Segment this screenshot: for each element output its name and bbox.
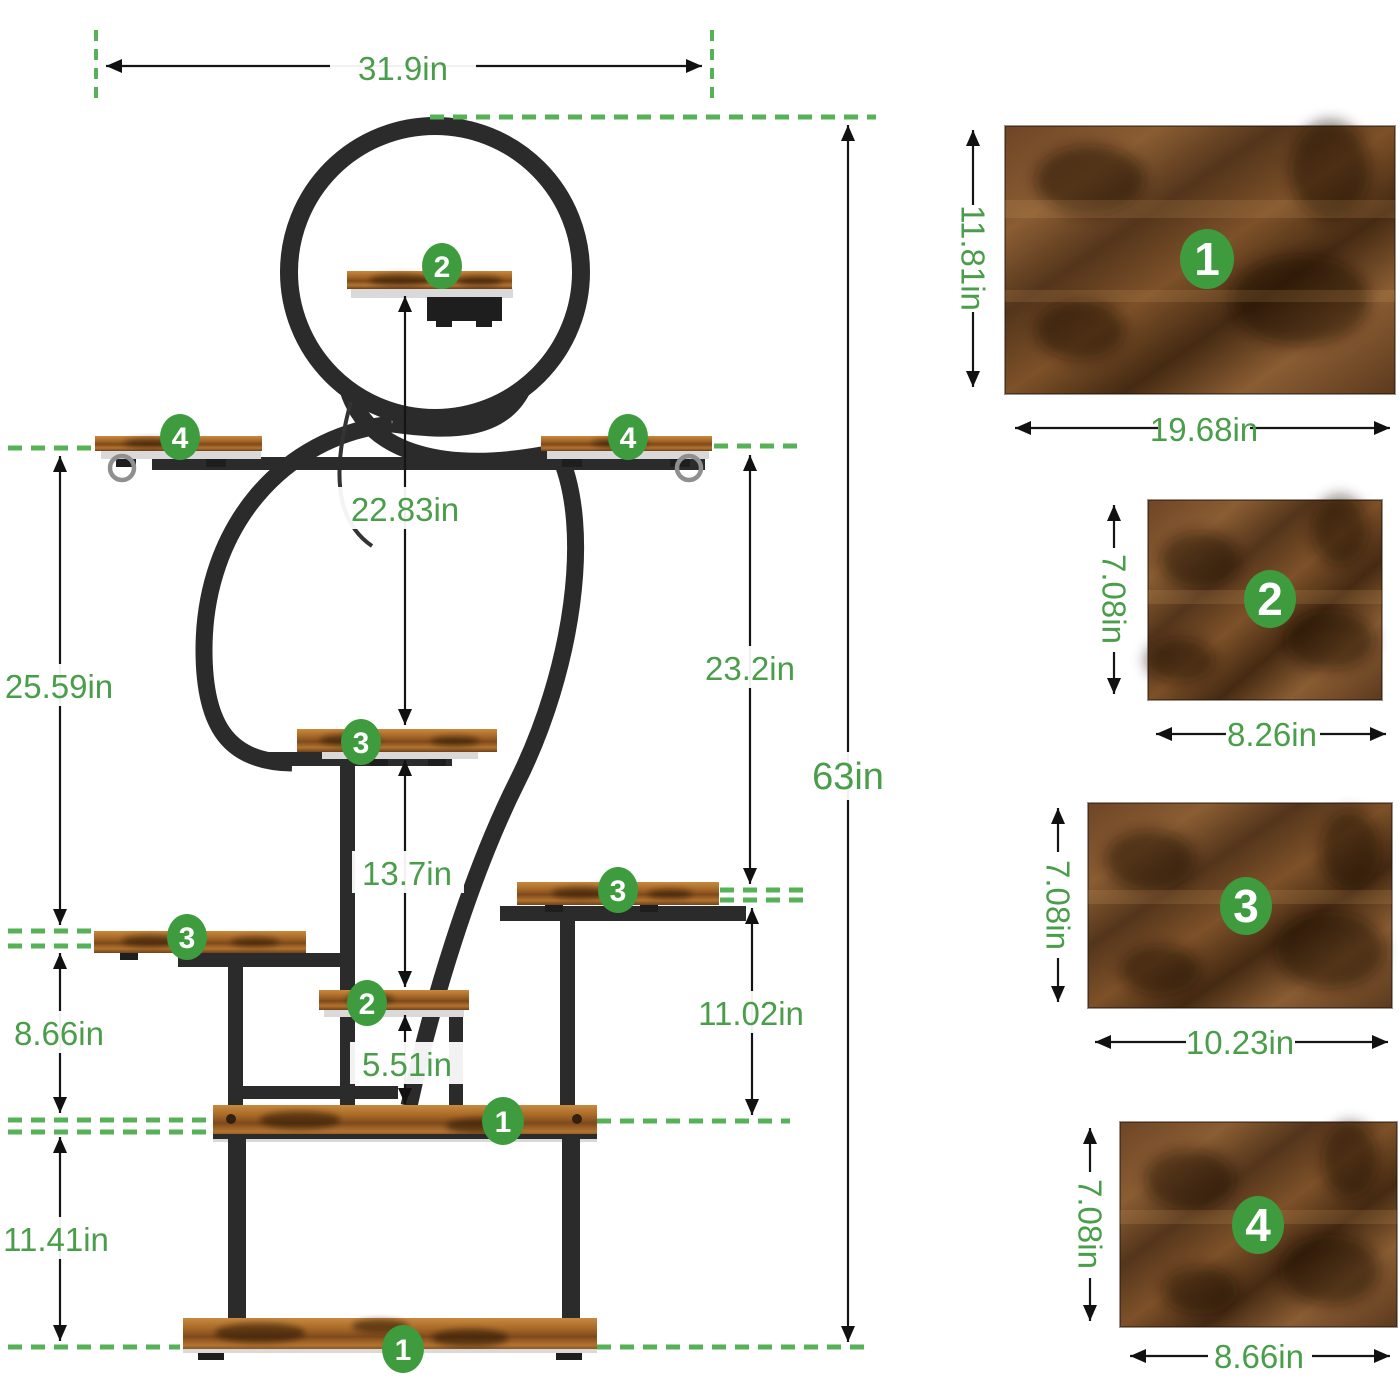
panel-3-width-label: 10.23in — [1186, 1024, 1294, 1061]
svg-text:1: 1 — [495, 1106, 512, 1139]
svg-text:3: 3 — [1233, 880, 1259, 932]
dim-total-height: 63in — [812, 125, 886, 1342]
badge-shelf-4-right: 4 — [608, 414, 648, 460]
dim-shelf2-to-shelf3: 22.83in — [336, 296, 478, 725]
dim-arm-to-shelf3-right: 23.2in — [698, 455, 804, 884]
badge-shelf-3-lower: 3 — [167, 914, 207, 960]
lower-crossbar — [230, 1086, 398, 1099]
dim-arm-to-shelf3-left-label: 25.59in — [5, 668, 113, 705]
badge-shelf-3-right: 3 — [598, 867, 638, 913]
right-post — [560, 917, 575, 1109]
panel-1-width-label: 19.68in — [1150, 411, 1258, 448]
svg-text:2: 2 — [359, 988, 376, 1021]
dim-shelf3-to-shelf2-label: 13.7in — [362, 855, 452, 892]
stand-frame — [94, 126, 746, 1360]
size-panel-3: 3 7.08in 10.23in — [1039, 803, 1392, 1061]
badge-shelf-3-upper: 3 — [341, 719, 381, 765]
dim-total-height-label: 63in — [812, 756, 884, 798]
svg-text:2: 2 — [1257, 573, 1283, 625]
badge-shelf-2-top: 2 — [422, 243, 462, 289]
svg-text:4: 4 — [1245, 1199, 1271, 1251]
size-panel-2: 2 7.08in 8.26in — [1095, 495, 1386, 753]
panel-2-width-label: 8.26in — [1227, 716, 1317, 753]
svg-text:1: 1 — [1194, 233, 1220, 285]
dimension-annotations: 31.9in 63in 22.83in 13.7in 5 — [0, 30, 886, 1347]
dim-shelf3-to-board-left-label: 8.66in — [14, 1015, 104, 1052]
svg-text:4: 4 — [172, 422, 189, 455]
svg-text:3: 3 — [353, 727, 370, 760]
dim-arm-to-shelf3-right-label: 23.2in — [705, 650, 795, 687]
svg-text:1: 1 — [395, 1334, 412, 1367]
dim-board-to-floor: 11.41in — [0, 1137, 116, 1341]
panel-3-height-label: 7.08in — [1039, 860, 1076, 950]
badge-board-1-base: 1 — [382, 1325, 424, 1373]
dim-board-to-floor-label: 11.41in — [3, 1221, 109, 1258]
svg-text:3: 3 — [610, 875, 627, 908]
badge-shelf-2-small: 2 — [347, 980, 387, 1026]
panel-4-height-label: 7.08in — [1071, 1179, 1108, 1269]
dim-top-width: 31.9in — [106, 45, 702, 87]
panel-1-height-label: 11.81in — [954, 205, 991, 311]
svg-text:4: 4 — [620, 422, 637, 455]
svg-text:3: 3 — [179, 922, 196, 955]
dim-shelf3-to-board-right: 11.02in — [692, 908, 812, 1115]
dim-shelf2-to-shelf3-label: 22.83in — [351, 491, 459, 528]
plant-stand-dimension-diagram: 31.9in 63in 22.83in 13.7in 5 — [0, 0, 1400, 1400]
dim-shelf3-to-board-left: 8.66in — [8, 953, 112, 1113]
panel-2-height-label: 7.08in — [1095, 554, 1132, 644]
shelf-size-panels: 1 11.81in 19.68in 2 7.08in 8.26in — [954, 120, 1397, 1375]
size-panel-1: 1 11.81in 19.68in — [954, 120, 1395, 448]
leg-left — [228, 1139, 246, 1323]
shelf-2-small — [319, 990, 469, 1017]
badge-shelf-4-left: 4 — [160, 414, 200, 460]
dim-shelf3-to-board-right-label: 11.02in — [698, 995, 804, 1032]
shelf3-lower-bar — [178, 953, 350, 967]
badge-board-1-upper: 1 — [482, 1097, 524, 1145]
board-1-upper — [213, 1105, 597, 1142]
leg-right — [562, 1139, 580, 1323]
size-panel-4: 4 7.08in 8.66in — [1071, 1122, 1397, 1375]
dim-shelf2-to-board-label: 5.51in — [362, 1046, 452, 1083]
left-post — [228, 954, 243, 1109]
svg-text:2: 2 — [434, 251, 451, 284]
dim-arm-to-shelf3-left: 25.59in — [0, 456, 122, 925]
belly-curve — [204, 424, 392, 763]
diagram-canvas: 31.9in 63in 22.83in 13.7in 5 — [0, 0, 1400, 1400]
panel-4-width-label: 8.66in — [1214, 1338, 1304, 1375]
dim-top-width-label: 31.9in — [358, 50, 448, 87]
